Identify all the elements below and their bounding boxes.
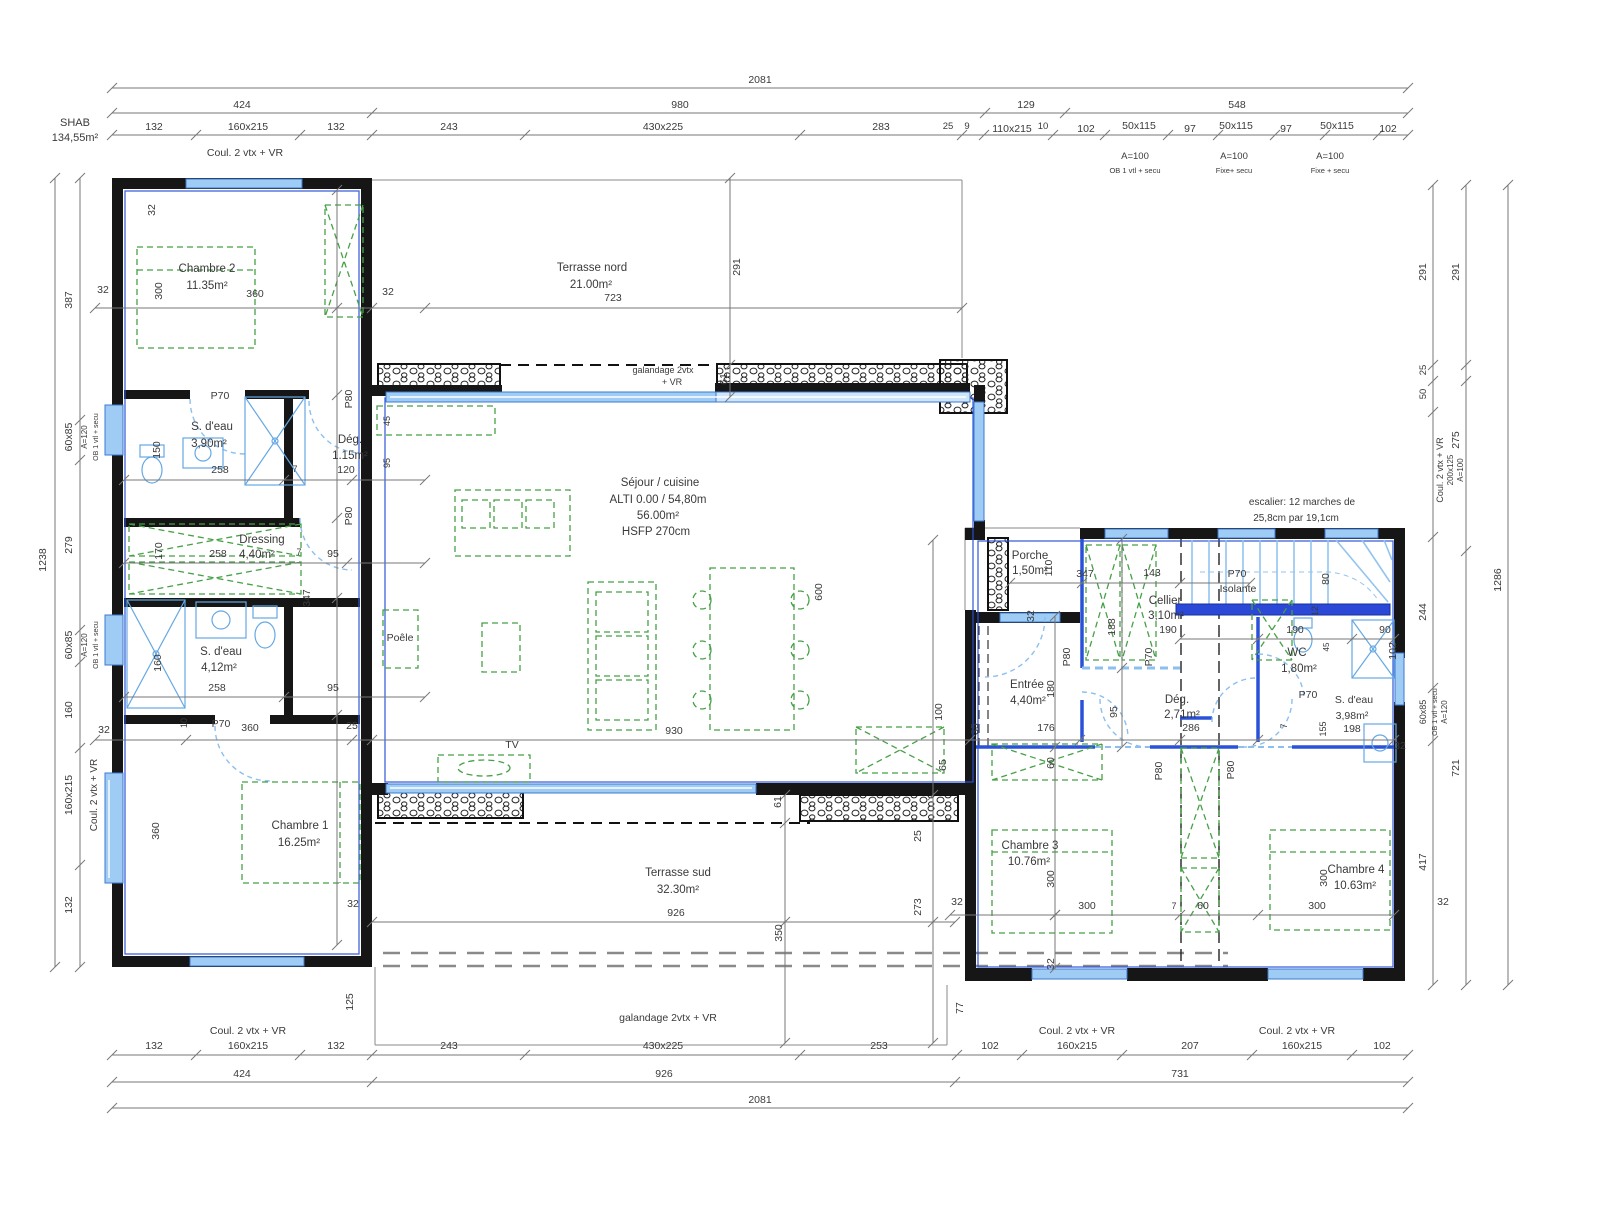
room-area: 11.35m² — [186, 280, 228, 292]
interior-dims-label: 95 — [1108, 706, 1120, 718]
interior-dims-label: P80 — [343, 507, 355, 526]
room-cellier: Cellier — [1149, 595, 1182, 607]
interior-dims-label: 300 — [1045, 870, 1057, 888]
walls-shape — [1394, 528, 1405, 658]
interior-dims-label: 7 — [1171, 901, 1176, 911]
window-note: Coul. 2 vtx + VR — [1435, 437, 1445, 503]
interior-dims-label: 61 — [772, 796, 784, 808]
galandage-note: galandage 2vtx — [632, 365, 694, 375]
poele-label: Poêle — [387, 632, 414, 644]
window-note: A=100 — [1220, 151, 1248, 162]
window-110x215 — [974, 402, 984, 521]
room-area: 3,90m² — [191, 438, 227, 450]
dims-top-label: 50x115 — [1320, 120, 1354, 132]
walls-shape — [124, 715, 215, 724]
interior-dims-label: 300 — [1318, 869, 1330, 887]
interior-dims-label: P80 — [1225, 761, 1237, 780]
dims-top-label: 548 — [1228, 99, 1246, 111]
interior-dims-label: 926 — [667, 907, 685, 919]
window-note: OB 1 vtl + secu — [1109, 166, 1160, 175]
dims-top-label: 980 — [671, 99, 689, 111]
interior-dims-label: 95 — [327, 682, 339, 694]
interior-dims-label: 273 — [912, 898, 924, 916]
dims-top-label: 2081 — [748, 74, 772, 86]
interior-dims-label: 32 — [382, 286, 394, 298]
window-note: A=100 — [1121, 151, 1149, 162]
stair-handrail — [1176, 604, 1390, 615]
interior-dims-label: 170 — [153, 542, 165, 560]
walls-shape — [965, 610, 976, 981]
window-note: A=120 — [80, 633, 89, 657]
interior-dims-label: P70 — [211, 390, 230, 402]
stair-note: 25,8cm par 19,1cm — [1253, 513, 1339, 524]
galandage-note: + VR — [662, 377, 683, 387]
walls-shape — [284, 390, 293, 527]
dims-top-label: 102 — [1077, 123, 1095, 135]
window-50x115 — [1105, 529, 1168, 538]
interior-dims-label: 291 — [731, 258, 743, 276]
dims-right-label: 291 — [1417, 263, 1429, 281]
room-area: 10.76m² — [1008, 856, 1050, 868]
interior-dims-label: 188 — [1106, 618, 1118, 636]
room-sdeau-3: S. d'eau — [1335, 694, 1373, 706]
window-160x215 — [190, 957, 304, 966]
terrace-hatch-north-left — [378, 364, 500, 388]
interior-dims-label: 77 — [954, 1002, 966, 1014]
dims-left-label: 160 — [63, 701, 75, 719]
interior-dims-label: 60 — [1197, 900, 1209, 912]
interior-dims-label: 12 — [1310, 606, 1320, 616]
dims-bottom-label: 2081 — [748, 1094, 772, 1106]
dims-right-label: 50 — [1418, 389, 1429, 400]
interior-dims-label: 7 — [292, 464, 297, 474]
interior-dims-label: 90 — [1379, 624, 1391, 636]
interior-dims-label: 120 — [337, 464, 355, 476]
dims-top-label: 102 — [1379, 123, 1397, 135]
interior-dims-label: 723 — [604, 292, 622, 304]
interior-dims-label: 300 — [1078, 900, 1096, 912]
dims-left-label: 60x85 — [63, 423, 75, 452]
interior-dims-label: P80 — [343, 390, 355, 409]
interior-dims-label: 10 — [179, 718, 189, 728]
interior-dims-label: 32 — [1437, 896, 1449, 908]
dims-right-label: 721 — [1450, 759, 1462, 777]
interior-dims-label: 32 — [951, 896, 963, 908]
dims-top-label: 25 — [943, 121, 954, 132]
terrace-hatch-south-right — [800, 795, 958, 821]
room-sdeau-1: S. d'eau — [191, 421, 233, 433]
dims-top-label: 160x215 — [228, 121, 268, 133]
interior-dims-label: 32 — [97, 284, 109, 296]
interior-dims-label: 32 — [146, 204, 158, 216]
dims-top-label: 10 — [1038, 121, 1049, 132]
room-area: 1,80m² — [1281, 663, 1317, 675]
interior-dims-label: 198 — [1343, 723, 1361, 735]
window-note: A=120 — [1440, 700, 1449, 724]
room-area: 56.00m² — [637, 510, 679, 522]
window-note: A=120 — [80, 425, 89, 449]
window-60x85 — [105, 405, 123, 455]
walls-shape — [245, 390, 309, 399]
interior-dims-label: 155 — [1318, 721, 1328, 736]
window-160x215 — [105, 773, 123, 883]
interior-dims-label: 360 — [241, 722, 259, 734]
interior-dims-label: 32 — [98, 724, 110, 736]
dims-right-label: 60x85 — [1418, 700, 1428, 725]
shab-area: 134,55m² — [52, 132, 99, 144]
room-area: 32.30m² — [657, 884, 699, 896]
window-160x215 — [186, 179, 302, 188]
interior-dims-label: P70 — [1143, 648, 1155, 667]
interior-dims-label: 25 — [912, 830, 924, 842]
room-area: 4,40m² — [239, 549, 275, 561]
window-note: Coul. 2 vtx + VR — [1039, 1025, 1116, 1037]
porch-pillar-hatch — [988, 538, 1008, 610]
dims-bottom-label: 132 — [145, 1040, 163, 1052]
interior-dims-label: 143 — [1143, 567, 1161, 579]
dims-bottom-label: 926 — [655, 1068, 673, 1080]
dims-bottom-label: 731 — [1171, 1068, 1189, 1080]
window-note: Coul. 2 vtx + VR — [89, 759, 100, 832]
interior-dims-label: 350 — [773, 924, 785, 942]
dims-top-label: 283 — [872, 121, 890, 133]
dims-top-label: 50x115 — [1219, 120, 1253, 132]
room-area: 3,98m² — [1336, 710, 1369, 722]
room-entree: Entrée — [1010, 679, 1044, 691]
room-terrasse-sud: Terrasse sud — [645, 867, 711, 879]
interior-dims-label: 360 — [246, 288, 264, 300]
interior-dims-label: Isolante — [1220, 583, 1257, 595]
dims-top-label: 424 — [233, 99, 251, 111]
dims-left-label: 279 — [63, 536, 75, 554]
dims-right-label: 25 — [1418, 365, 1429, 376]
interior-dims-label: 360 — [150, 822, 162, 840]
dims-bottom-label: 132 — [327, 1040, 345, 1052]
room-area: 10.63m² — [1334, 880, 1376, 892]
interior-dims-label: 45 — [1322, 642, 1331, 651]
dims-right-label: 275 — [1450, 431, 1462, 449]
interior-dims-label: 32 — [347, 898, 359, 910]
interior-dims-label: 190 — [1286, 624, 1304, 636]
window-note: Coul. 2 vtx + VR — [1259, 1025, 1336, 1037]
floor-plan-canvas: SHAB134,55m²escalier: 12 marches de25,8c… — [0, 0, 1600, 1214]
stair-note: escalier: 12 marches de — [1249, 497, 1356, 508]
dims-bottom-label: 102 — [981, 1040, 999, 1052]
interior-dims-label: 150 — [151, 441, 163, 459]
dims-left-label: 160x215 — [63, 775, 75, 815]
dims-right-label: 244 — [1417, 603, 1429, 621]
interior-dims-label: 176 — [1037, 722, 1055, 734]
walls-shape — [1363, 968, 1405, 981]
dims-top-label: 132 — [327, 121, 345, 133]
walls-shape — [974, 385, 985, 403]
interior-dims-label: 7 — [296, 547, 301, 557]
window-160x215 — [1268, 969, 1363, 979]
window-60x85 — [1395, 653, 1404, 705]
room-dressing: Dressing — [239, 534, 284, 546]
interior-dims-label: 95 — [327, 548, 339, 560]
interior-dims-label: 32 — [1025, 610, 1037, 622]
interior-dims-label: 347 — [301, 589, 313, 607]
dims-right-label: 417 — [1417, 853, 1429, 871]
dims-top-label: 132 — [145, 121, 163, 133]
window-50x115 — [1325, 529, 1378, 538]
walls-shape — [756, 783, 974, 795]
window-note: Coul. 2 vtx + VR — [210, 1025, 287, 1037]
dims-top-label: 129 — [1017, 99, 1035, 111]
interior-dims-label: 258 — [209, 548, 227, 560]
room-sejour-cuisine: Séjour / cuisine — [621, 477, 700, 489]
dims-bottom-label: 160x215 — [1057, 1040, 1097, 1052]
shab-label: SHAB — [60, 117, 90, 129]
dims-top-label: 50x115 — [1122, 120, 1156, 132]
dims-left-label: 60x85 — [63, 631, 75, 660]
interior-dims-label: 80 — [1320, 573, 1332, 585]
interior-dims-label: 110 — [1043, 559, 1055, 576]
room-degagement-2: Dég. — [1165, 694, 1189, 706]
dims-right-label: 1286 — [1492, 568, 1504, 592]
dims-bottom-label: 160x215 — [1282, 1040, 1322, 1052]
dims-bottom-label: 207 — [1181, 1040, 1199, 1052]
window-note: A=100 — [1316, 151, 1344, 162]
dims-bottom-label: 102 — [1373, 1040, 1391, 1052]
interior-dims-label: P70 — [1228, 568, 1247, 580]
terrace-hatch-south-left — [378, 792, 523, 818]
room-area: 3,10m² — [1148, 610, 1184, 622]
interior-dims-label: 32 — [1045, 958, 1057, 970]
room-wc: WC — [1287, 647, 1306, 659]
window-note: 200x125 — [1446, 454, 1455, 485]
dims-top-label: 9 — [964, 121, 969, 132]
interior-dims-label: 160 — [152, 654, 164, 672]
window-note: OB 1 vtl + secu — [1432, 688, 1439, 736]
room-degagement-1: Dég. — [338, 434, 362, 446]
interior-dims-label: 258 — [208, 682, 226, 694]
interior-dims-label: 25 — [346, 720, 358, 732]
interior-dims-label: P70 — [212, 718, 231, 730]
interior-dims-label: 300 — [153, 282, 165, 300]
interior-dims-label: 258 — [211, 464, 229, 476]
room-alti: ALTI 0.00 / 54,80m — [610, 494, 707, 506]
dims-bottom-label: 253 — [870, 1040, 888, 1052]
window-note: OB 1 vtl + secu — [93, 413, 100, 461]
dims-top-label: 110x215 — [992, 123, 1032, 135]
walls-shape — [124, 390, 190, 399]
tv-label: TV — [505, 739, 518, 751]
interior-dims-label: 45 — [382, 416, 392, 426]
interior-dims-label: 100 — [933, 703, 945, 721]
interior-dims-label: P70 — [1299, 689, 1318, 701]
interior-dims-label: 32 — [1394, 740, 1406, 752]
interior-dims-label: 125 — [344, 993, 356, 1011]
dims-left-label: 387 — [63, 291, 75, 309]
room-area: 4,40m² — [1010, 695, 1046, 707]
walls-shape — [965, 528, 976, 540]
room-terrasse-nord: Terrasse nord — [557, 262, 627, 274]
interior-dims-label: 930 — [665, 725, 683, 737]
dims-left-label: 1238 — [37, 548, 49, 572]
interior-dims-label: 102 — [1387, 642, 1399, 660]
dims-bottom-label: 424 — [233, 1068, 251, 1080]
galandage-note: galandage 2vtx + VR — [619, 1012, 717, 1024]
room-area: 21.00m² — [570, 279, 612, 291]
room-sdeau-2: S. d'eau — [200, 646, 242, 658]
walls-shape — [1127, 968, 1268, 981]
interior-dims-label: 190 — [1159, 624, 1177, 636]
dims-bottom-label: 430x225 — [643, 1040, 683, 1052]
dims-top-label: 97 — [1184, 123, 1196, 135]
dims-right-label: 291 — [1450, 263, 1462, 281]
room-area: 4,12m² — [201, 662, 237, 674]
room-area: 2,71m² — [1164, 709, 1200, 721]
room-area: 1.15m² — [332, 450, 368, 462]
window-note: Coul. 2 vtx + VR — [207, 147, 284, 159]
interior-dims-label: 286 — [1182, 722, 1200, 734]
room-hsfp: HSFP 270cm — [622, 526, 690, 538]
dims-top-label: 97 — [1280, 123, 1292, 135]
dims-bottom-label: 243 — [440, 1040, 458, 1052]
interior-dims-label: 300 — [1308, 900, 1326, 912]
walls-shape — [965, 968, 1032, 981]
window-note: A=100 — [1456, 458, 1465, 482]
interior-dims-label: 180 — [1045, 680, 1057, 698]
dims-top-label: 243 — [440, 121, 458, 133]
interior-dims-label: 65 — [937, 759, 949, 771]
interior-dims-label: 60 — [1045, 757, 1057, 769]
window-50x115 — [1218, 529, 1275, 538]
interior-dims-label: 600 — [813, 583, 825, 601]
interior-dims-label: 347 — [1076, 568, 1094, 580]
interior-dims-label: 95 — [382, 458, 392, 468]
interior-dims-label: P80 — [1061, 648, 1073, 667]
room-chambre-1: Chambre 1 — [272, 820, 329, 832]
window-note: Fixe + secu — [1311, 166, 1350, 175]
room-chambre-2: Chambre 2 — [179, 263, 236, 275]
window-note: OB 1 vtl + secu — [93, 621, 100, 669]
interior-dims-label: 61 — [718, 373, 730, 385]
dims-left-label: 132 — [63, 896, 75, 914]
dims-top-label: 430x225 — [643, 121, 683, 133]
room-chambre-4: Chambre 4 — [1328, 864, 1385, 876]
room-area: 16.25m² — [278, 837, 320, 849]
walls-shape — [361, 178, 372, 967]
window-note: Fixe+ secu — [1216, 166, 1252, 175]
floor-plan-page: SHAB134,55m²escalier: 12 marches de25,8c… — [0, 0, 1600, 1214]
interior-dims-label: 35 — [969, 723, 981, 735]
interior-dims-label: 7 — [1279, 723, 1289, 728]
room-chambre-3: Chambre 3 — [1002, 840, 1059, 852]
walls-shape — [124, 518, 300, 527]
interior-dims-label: P80 — [1153, 762, 1165, 781]
window-60x85 — [105, 615, 123, 665]
dims-bottom-label: 160x215 — [228, 1040, 268, 1052]
